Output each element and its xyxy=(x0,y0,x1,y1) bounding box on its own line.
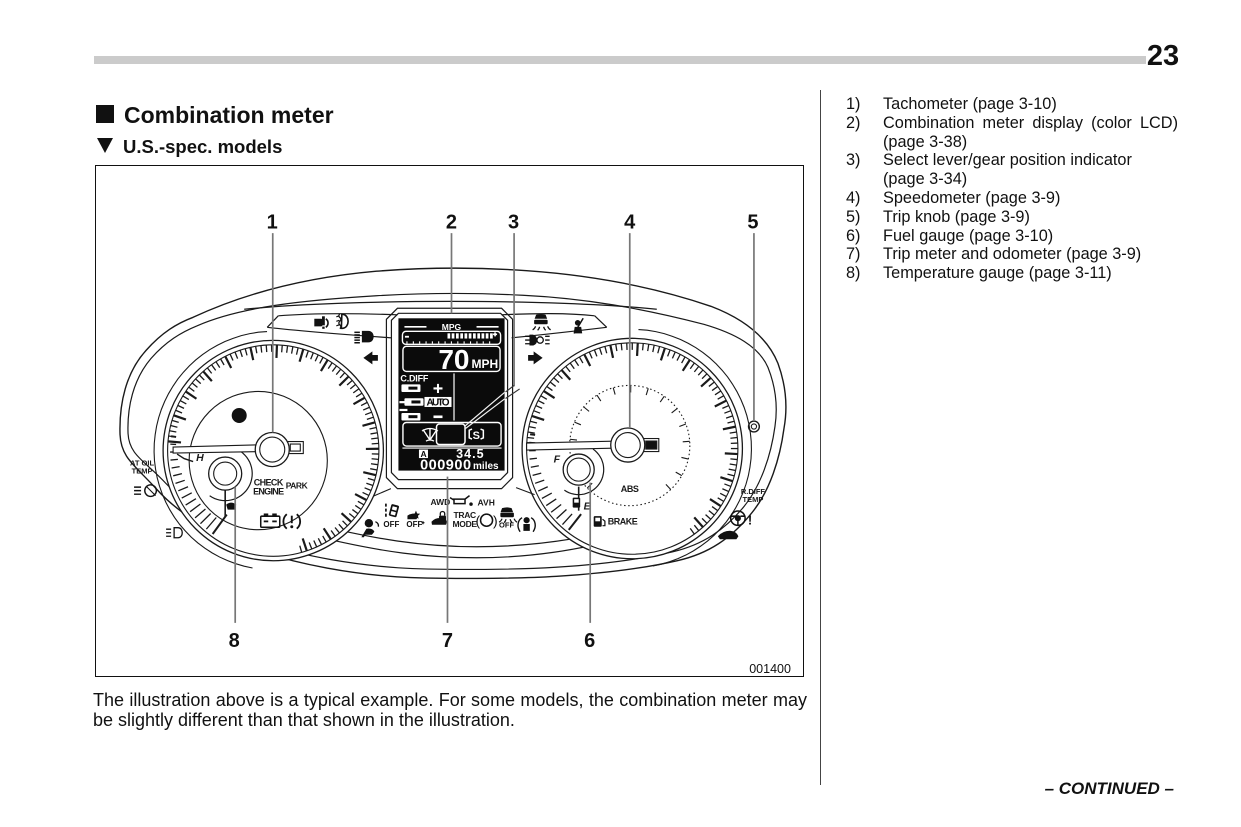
svg-text:PARK: PARK xyxy=(286,481,309,491)
svg-text:C.DIFF: C.DIFF xyxy=(400,373,428,383)
svg-text:): ) xyxy=(493,513,498,529)
svg-text:OFF: OFF xyxy=(383,520,399,529)
svg-text:TEMP: TEMP xyxy=(132,467,153,476)
svg-text:70: 70 xyxy=(438,344,469,375)
svg-text:ABS: ABS xyxy=(621,484,639,494)
svg-text:OFF: OFF xyxy=(499,521,514,530)
svg-text:OFF: OFF xyxy=(406,520,422,529)
svg-text:2: 2 xyxy=(446,212,457,234)
svg-text:AUTO: AUTO xyxy=(426,397,449,408)
svg-text:MODE: MODE xyxy=(453,519,478,529)
svg-text:(: ( xyxy=(476,513,481,529)
svg-text:000900: 000900 xyxy=(420,458,471,474)
svg-text:S: S xyxy=(473,430,480,442)
svg-text:6: 6 xyxy=(584,630,595,652)
svg-text:F: F xyxy=(554,454,561,466)
svg-text:AVH: AVH xyxy=(478,498,495,508)
svg-text:5: 5 xyxy=(747,212,758,234)
svg-text:miles: miles xyxy=(473,461,499,472)
svg-text:3: 3 xyxy=(508,212,519,234)
svg-text:MPG: MPG xyxy=(442,322,462,332)
svg-text:MPH: MPH xyxy=(472,357,499,371)
svg-text:1: 1 xyxy=(267,212,278,234)
svg-text:4: 4 xyxy=(624,212,636,234)
svg-text:001400: 001400 xyxy=(749,662,791,676)
svg-text:ENGINE: ENGINE xyxy=(253,487,284,497)
svg-text:BRAKE: BRAKE xyxy=(608,517,638,527)
svg-text:TEMP: TEMP xyxy=(743,495,764,504)
svg-text:!: ! xyxy=(748,513,752,528)
svg-text:H: H xyxy=(196,452,204,464)
svg-text:7: 7 xyxy=(442,630,453,652)
svg-text:8: 8 xyxy=(229,630,240,652)
